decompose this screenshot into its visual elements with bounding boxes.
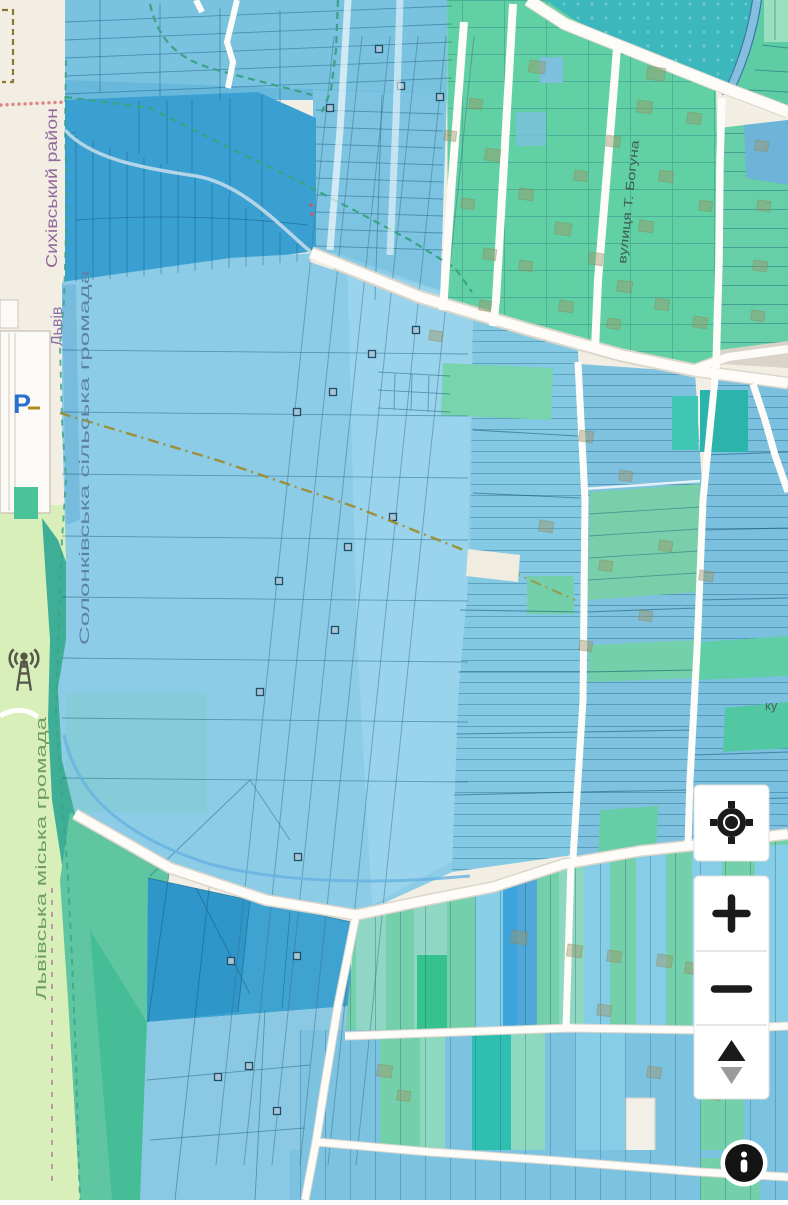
svg-text:Львівська міська громада: Львівська міська громада [34,715,50,1000]
svg-text:ку: ку [765,698,778,713]
svg-text:P: P [13,389,31,419]
svg-text:Львів: Львів [49,307,66,346]
svg-text:Солонківська сільська громада: Солонківська сільська громада [76,270,92,645]
svg-text:Сихівський район: Сихівський район [44,108,61,268]
